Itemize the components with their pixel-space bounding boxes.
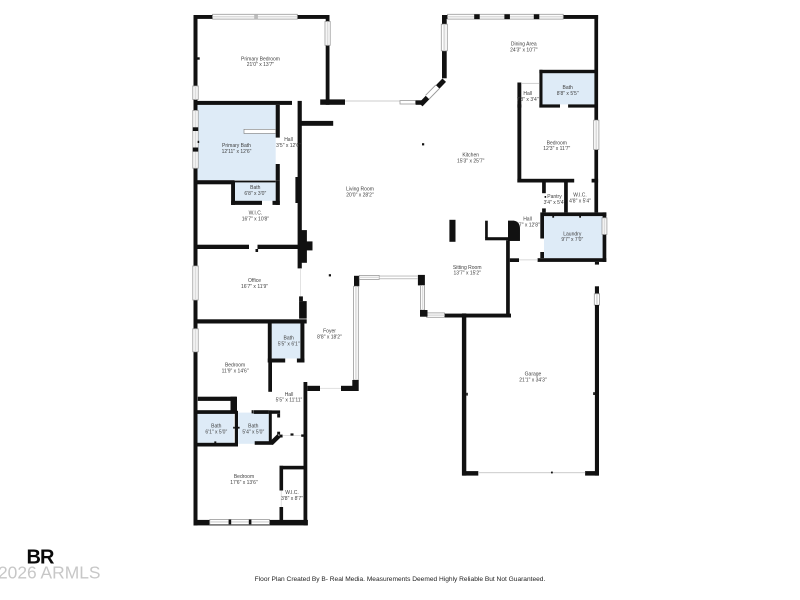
svg-text:7'3" x 3'4": 7'3" x 3'4" <box>517 97 539 103</box>
svg-text:17'6" x 13'6": 17'6" x 13'6" <box>230 480 258 486</box>
svg-text:20'0" x 28'2": 20'0" x 28'2" <box>346 192 374 198</box>
svg-text:4'8" x 5'4": 4'8" x 5'4" <box>569 198 591 204</box>
svg-text:8'8" x 5'5": 8'8" x 5'5" <box>557 91 579 97</box>
svg-text:3'5" x 12'6": 3'5" x 12'6" <box>276 143 301 149</box>
svg-text:Floor Plan Created By B- Real: Floor Plan Created By B- Real Media. Mea… <box>255 576 546 583</box>
svg-text:11'9" x 14'6": 11'9" x 14'6" <box>222 369 249 375</box>
svg-text:12'11" x 12'6": 12'11" x 12'6" <box>222 149 252 155</box>
svg-text:5'5" x 11'11": 5'5" x 11'11" <box>276 398 303 404</box>
svg-text:16'7" x 10'8": 16'7" x 10'8" <box>242 217 270 223</box>
svg-text:3'8" x 8'7": 3'8" x 8'7" <box>281 496 303 502</box>
svg-text:5'5" x 6'1": 5'5" x 6'1" <box>278 342 300 348</box>
svg-text:21'0" x 13'7": 21'0" x 13'7" <box>247 62 275 68</box>
svg-text:6'1" x 5'0": 6'1" x 5'0" <box>205 429 227 435</box>
svg-text:8'8" x 18'2": 8'8" x 18'2" <box>317 335 342 341</box>
svg-text:24'3" x 10'7": 24'3" x 10'7" <box>510 48 538 54</box>
svg-text:12'3" x 11'7": 12'3" x 11'7" <box>543 146 570 152</box>
svg-text:21'1" x 34'3": 21'1" x 34'3" <box>519 378 547 384</box>
svg-text:6'8" x 3'0": 6'8" x 3'0" <box>244 191 266 197</box>
svg-text:15'3" x 25'7": 15'3" x 25'7" <box>457 158 485 164</box>
svg-text:9'7" x 7'0": 9'7" x 7'0" <box>561 237 583 243</box>
svg-text:3'4" x 5'4": 3'4" x 5'4" <box>544 200 566 206</box>
svg-text:13'7" x 15'2": 13'7" x 15'2" <box>453 271 481 277</box>
svg-text:5'4" x 5'0": 5'4" x 5'0" <box>242 429 264 435</box>
svg-text:2026 ARMLS: 2026 ARMLS <box>0 563 100 583</box>
svg-text:16'7" x 11'9": 16'7" x 11'9" <box>241 284 268 290</box>
